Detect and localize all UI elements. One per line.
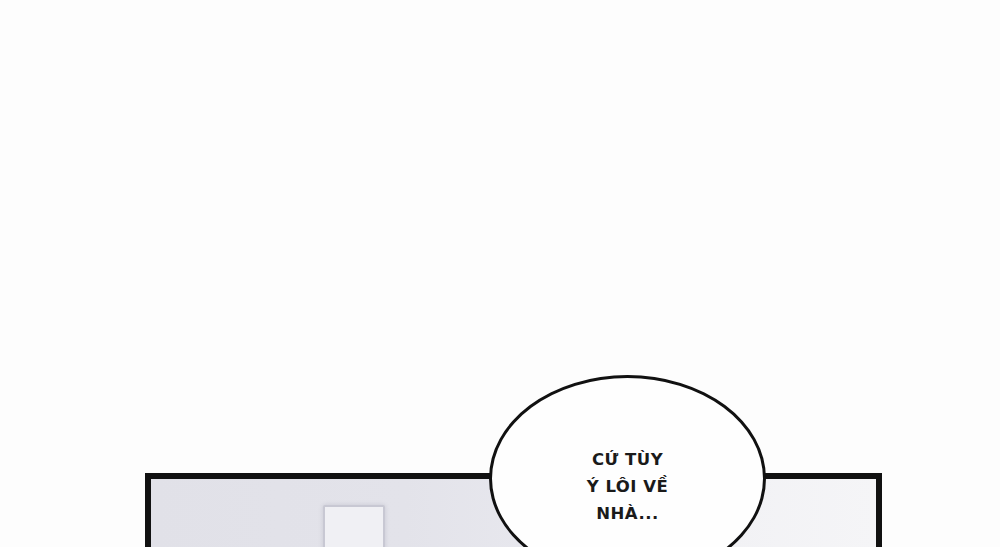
speech-line: CỨ TÙY xyxy=(492,446,763,473)
speech-line: NHÀ... xyxy=(492,500,763,527)
comic-page: { "page": { "type": "comic-page-segment"… xyxy=(0,0,1000,547)
speech-line: Ý LÔI VỀ xyxy=(492,473,763,500)
speech-bubble-text: CỨ TÙY Ý LÔI VỀ NHÀ... xyxy=(492,446,763,527)
speech-bubble: CỨ TÙY Ý LÔI VỀ NHÀ... xyxy=(489,375,766,547)
door-rectangle xyxy=(323,505,385,547)
